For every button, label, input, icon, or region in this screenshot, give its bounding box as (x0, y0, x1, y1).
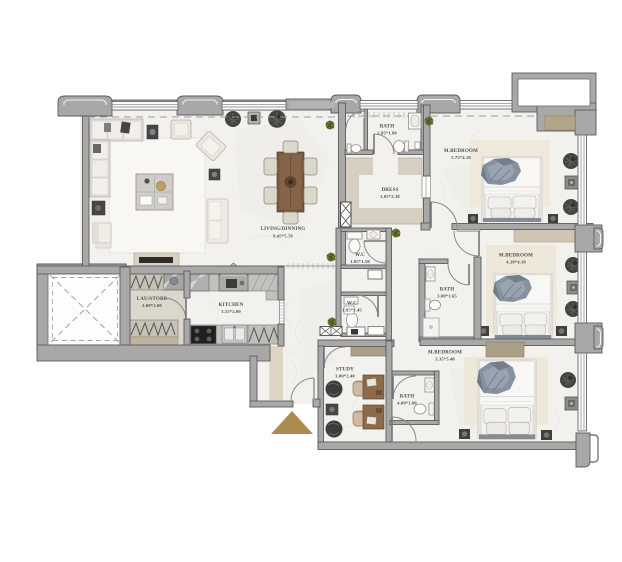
svg-text:3.35*5.40: 3.35*5.40 (435, 357, 455, 362)
svg-text:5.75*4.10: 5.75*4.10 (451, 155, 471, 160)
svg-text:M.BEDROOM: M.BEDROOM (499, 254, 533, 259)
svg-text:LAU/STORE: LAU/STORE (137, 297, 168, 302)
svg-text:M.BEDROOM: M.BEDROOM (444, 149, 478, 154)
svg-text:2.00*2.00: 2.00*2.00 (142, 303, 162, 308)
svg-text:STUDY: STUDY (336, 368, 354, 373)
svg-text:9.45*5.70: 9.45*5.70 (273, 234, 293, 239)
svg-text:M.BEDROOM: M.BEDROOM (428, 351, 462, 356)
svg-text:DRESS: DRESS (381, 188, 398, 193)
svg-text:LIVING/DINNING: LIVING/DINNING (261, 227, 306, 232)
svg-text:1.95*1.45: 1.95*1.45 (342, 308, 362, 313)
svg-text:4.00*1.80: 4.00*1.80 (397, 401, 417, 406)
svg-text:3.05*2.38: 3.05*2.38 (380, 194, 400, 199)
svg-text:3.00*1.65: 3.00*1.65 (437, 294, 457, 299)
svg-text:4.30*4.10: 4.30*4.10 (506, 260, 526, 265)
svg-text:BATH: BATH (440, 288, 455, 293)
svg-text:W.C: W.C (355, 253, 365, 258)
svg-text:BATH: BATH (380, 125, 395, 130)
svg-text:1.85*1.50: 1.85*1.50 (350, 259, 370, 264)
svg-text:W.C: W.C (347, 302, 357, 307)
svg-text:BATH: BATH (400, 395, 415, 400)
svg-text:3.00*2.40: 3.00*2.40 (335, 374, 355, 379)
svg-text:KITCHEN: KITCHEN (218, 303, 243, 308)
svg-text:2.95*1.80: 2.95*1.80 (377, 131, 397, 136)
svg-text:3.55*2.00: 3.55*2.00 (221, 309, 241, 314)
